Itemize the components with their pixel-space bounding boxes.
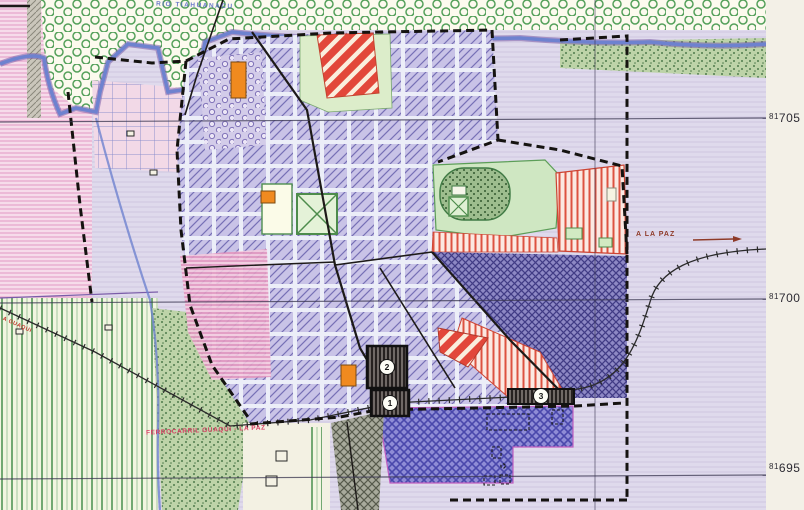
red-striped-zone-northeast	[556, 165, 627, 254]
grid-label-prefix: 81	[769, 292, 779, 301]
grid-label-prefix: 81	[769, 112, 779, 121]
green-lot-1	[566, 228, 582, 239]
grid-label-prefix: 81	[769, 462, 779, 471]
red-zone-top	[317, 33, 379, 98]
tree-strip-bottom	[311, 427, 322, 510]
map-artwork	[0, 0, 804, 510]
grid-label-value: 705	[779, 111, 801, 125]
site-marker-3-badge: 3	[533, 388, 549, 404]
orchard-band-top	[232, 0, 766, 30]
grid-label-value: 700	[779, 291, 801, 305]
grid-label-81700: 81700	[769, 289, 800, 307]
site-marker-2-badge: 2	[379, 359, 395, 375]
paper-margin	[766, 0, 804, 510]
grid-label-81695: 81695	[769, 459, 800, 477]
stadium-field	[452, 186, 466, 195]
grid-label-81705: 81705	[769, 109, 800, 127]
to-la-paz-label: A LA PAZ	[636, 231, 675, 238]
small-lot	[607, 188, 616, 201]
green-lot-2	[599, 238, 612, 247]
site-marker-1-badge: 1	[382, 395, 398, 411]
grid-label-value: 695	[779, 461, 801, 475]
map-canvas: RIO TIAHUANACU A LA PAZ FERROCARRIL GUAQ…	[0, 0, 804, 510]
